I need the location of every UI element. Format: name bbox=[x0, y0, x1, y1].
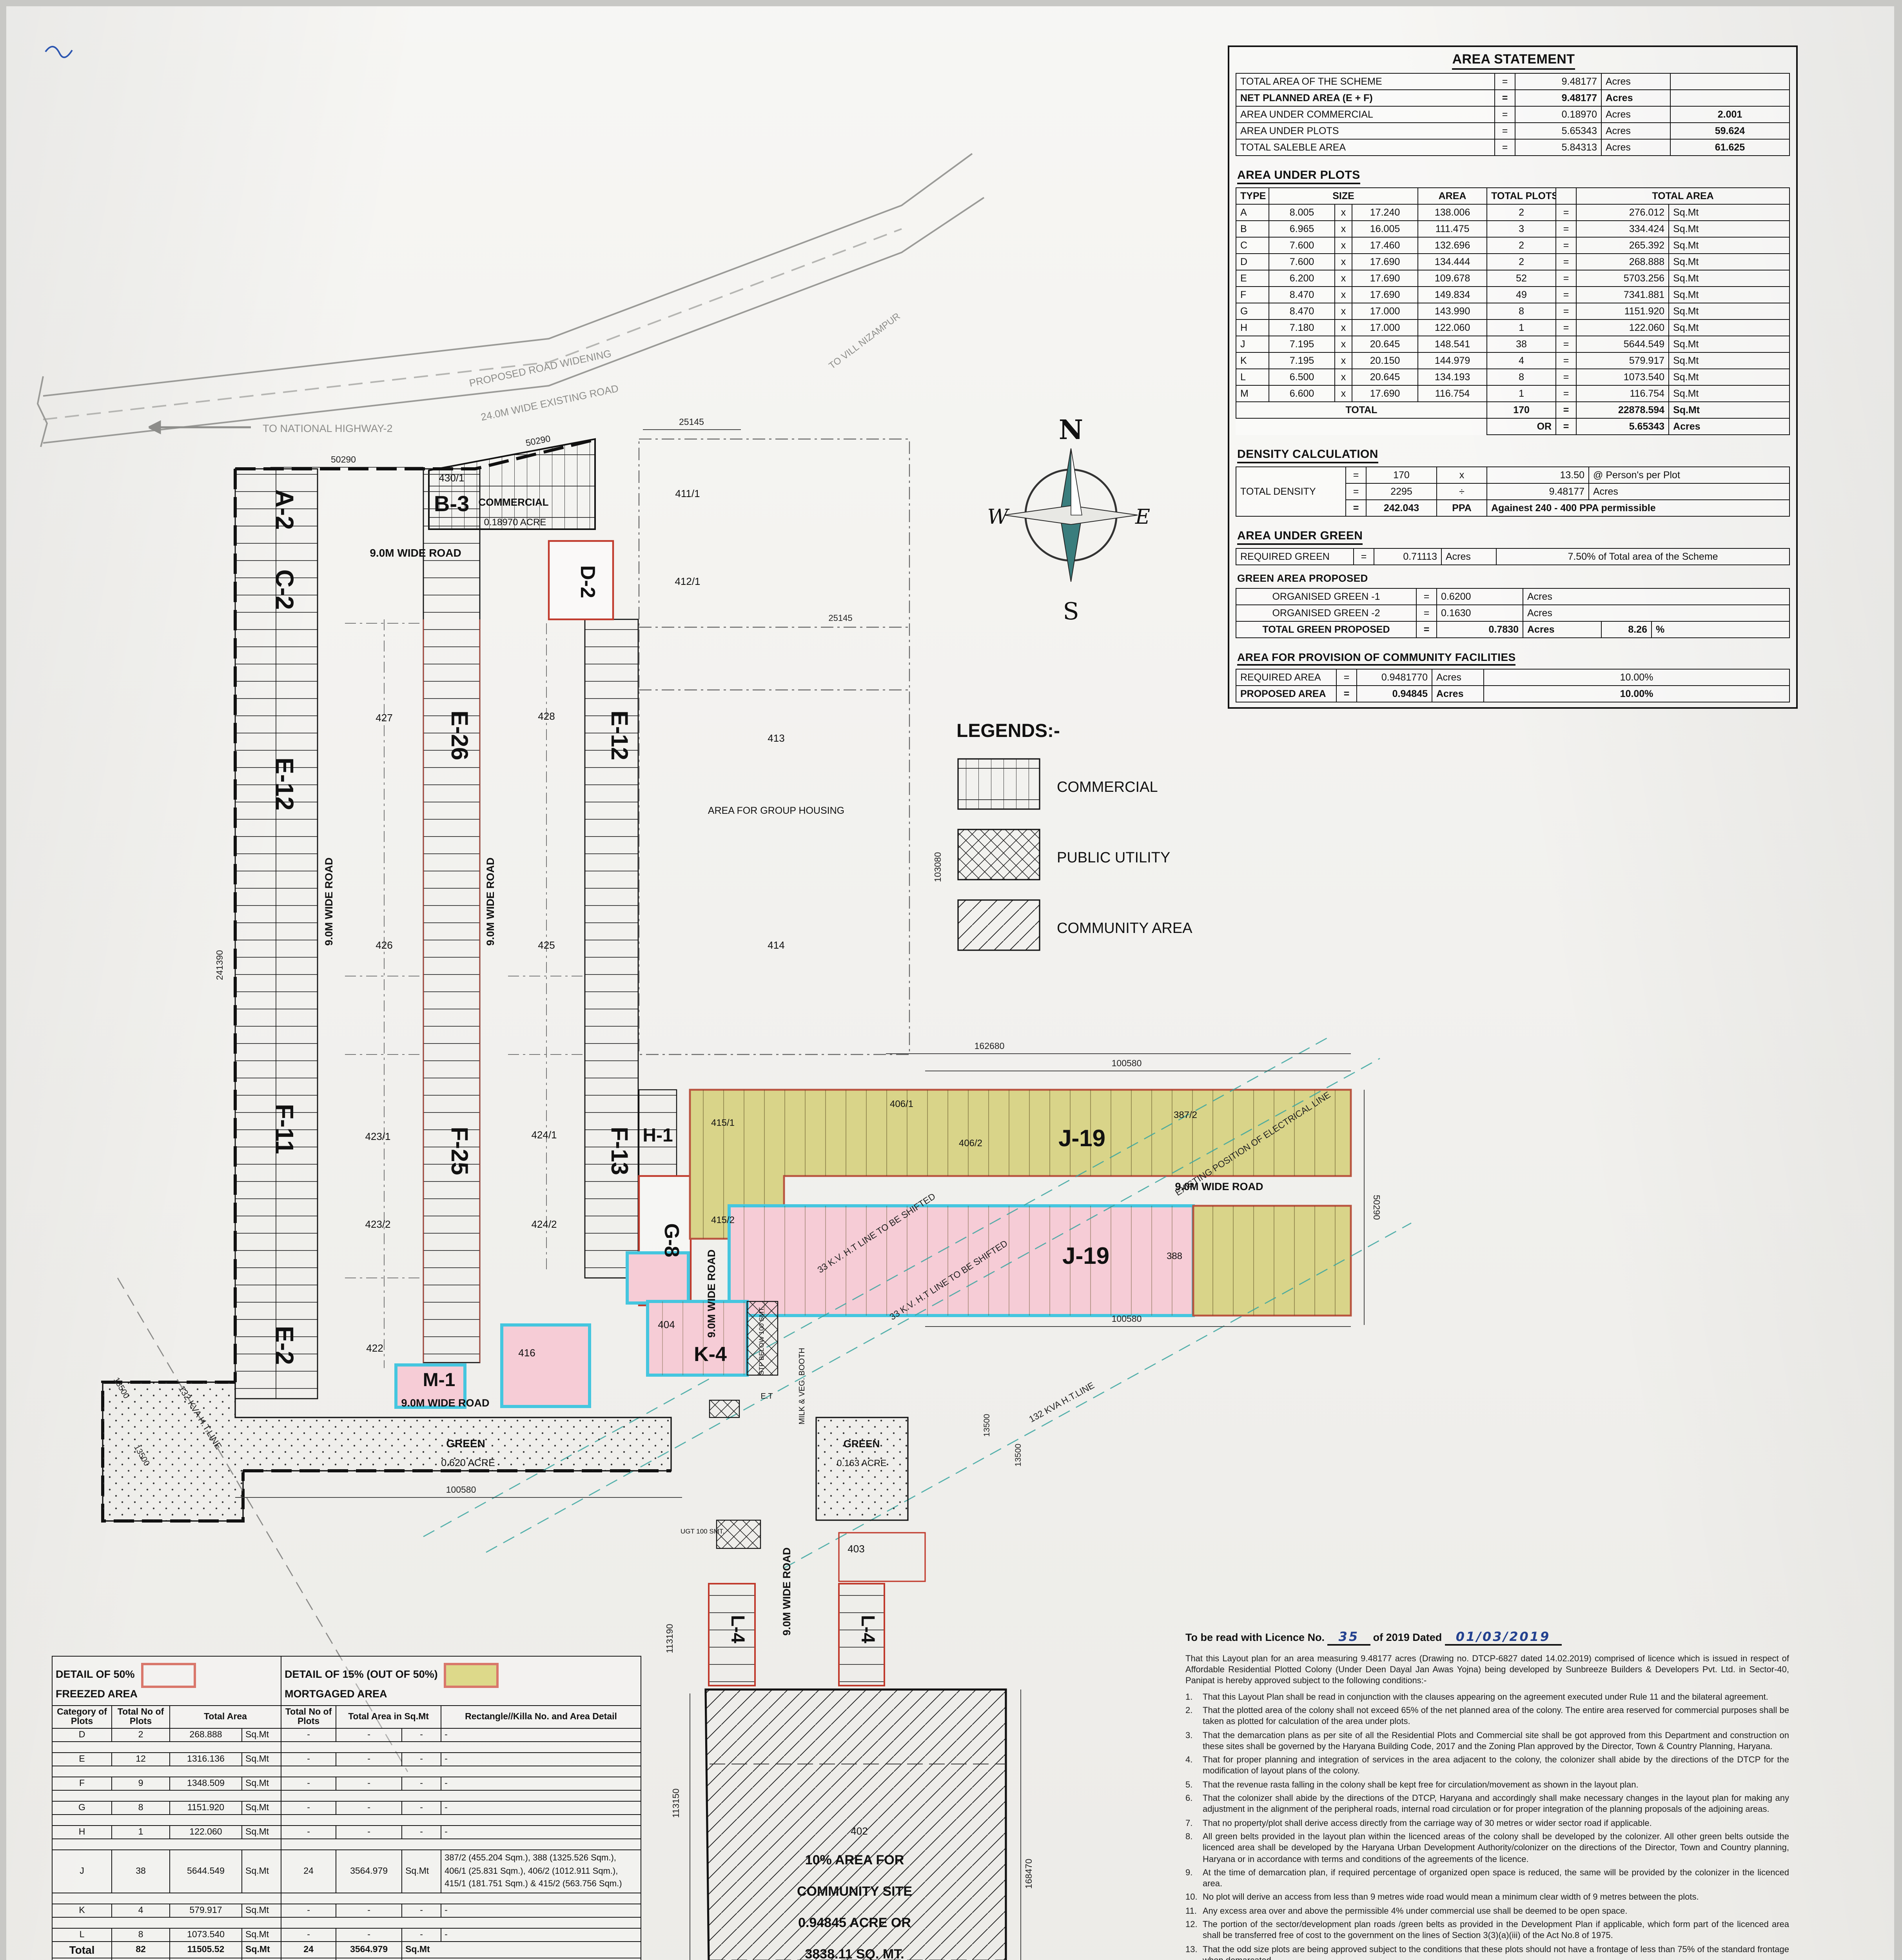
dim-100580-mid: 100580 bbox=[235, 1485, 682, 1497]
spacer-row bbox=[52, 1893, 641, 1904]
green-proposed-title: GREEN AREA PROPOSED bbox=[1237, 572, 1368, 585]
table-row: ORGANISED GREEN -1=0.6200Acres bbox=[1236, 588, 1789, 605]
svg-text:GREEN: GREEN bbox=[446, 1437, 485, 1450]
table-row-j: J385644.549Sq.Mt243564.979Sq.Mt387/2 (45… bbox=[52, 1850, 641, 1893]
table-row: C7.600x17.460132.6962=265.392Sq.Mt bbox=[1236, 237, 1789, 254]
table-row: E6.200x17.690109.67852=5703.256Sq.Mt bbox=[1236, 270, 1789, 287]
kh-402: 402 bbox=[851, 1825, 868, 1837]
svg-text:C-2: C-2 bbox=[270, 569, 299, 610]
area-statement-title: AREA STATEMENT bbox=[1452, 52, 1575, 70]
svg-text:B-3: B-3 bbox=[434, 491, 469, 516]
condition-item: 12.The portion of the sector/development… bbox=[1185, 1919, 1789, 1942]
freezed-mortgaged-table: DETAIL OF 50%FREEZED AREA DETAIL OF 15% … bbox=[52, 1656, 641, 1960]
table-row: M6.600x17.690116.7541=116.754Sq.Mt bbox=[1236, 385, 1789, 402]
dim-50290-right: 50290 bbox=[1364, 1090, 1382, 1325]
svg-text:E-12: E-12 bbox=[606, 711, 633, 760]
mortgaged-swatch bbox=[444, 1662, 499, 1688]
table-total-row: Total8211505.52Sq.Mt243564.979Sq.Mt bbox=[52, 1941, 641, 1958]
table-row: NET PLANNED AREA (E + F)=9.48177Acres bbox=[1236, 90, 1789, 106]
svg-text:F-11: F-11 bbox=[270, 1104, 299, 1154]
block-j19b-label: J-19 bbox=[1062, 1243, 1109, 1269]
dim-103080: 103080 bbox=[933, 852, 943, 882]
svg-text:E-12: E-12 bbox=[270, 757, 299, 810]
table-or-row: OR=5.65343Acres bbox=[1236, 418, 1789, 435]
svg-text:424/2: 424/2 bbox=[531, 1218, 557, 1230]
svg-text:H-1: H-1 bbox=[642, 1125, 673, 1146]
condition-item: 8.All green belts provided in the layout… bbox=[1185, 1831, 1789, 1865]
to-nizampur-label: TO VILL NIZAMPUR bbox=[827, 311, 902, 371]
kh-414: 414 bbox=[768, 939, 784, 951]
svg-text:9.0M WIDE ROAD: 9.0M WIDE ROAD bbox=[706, 1249, 717, 1338]
g8-freezed-bit bbox=[627, 1253, 688, 1303]
svg-text:UGT 100 SMT.: UGT 100 SMT. bbox=[681, 1528, 724, 1535]
table-row: TOTAL SALEBLE AREA=5.84313Acres61.625 bbox=[1236, 139, 1789, 156]
group-housing-label: AREA FOR GROUP HOUSING bbox=[708, 805, 844, 816]
svg-text:10% AREA FOR: 10% AREA FOR bbox=[805, 1853, 904, 1867]
table-row: D7.600x17.690134.4442=268.888Sq.Mt bbox=[1236, 254, 1789, 270]
svg-text:9.0M WIDE ROAD: 9.0M WIDE ROAD bbox=[323, 857, 335, 946]
svg-text:LEGENDS:-: LEGENDS:- bbox=[956, 720, 1060, 741]
svg-text:E: E bbox=[1135, 505, 1150, 529]
svg-text:E-2: E-2 bbox=[270, 1326, 299, 1365]
spacer-row bbox=[52, 1917, 641, 1928]
kh-406-2: 406/2 bbox=[959, 1138, 982, 1149]
svg-text:L-4: L-4 bbox=[727, 1615, 748, 1643]
area-statement-table: TOTAL AREA OF THE SCHEME=9.48177Acres NE… bbox=[1236, 73, 1790, 156]
svg-text:113150: 113150 bbox=[671, 1788, 681, 1818]
svg-text:9.0M WIDE ROAD: 9.0M WIDE ROAD bbox=[370, 547, 461, 559]
kh-413: 413 bbox=[768, 732, 784, 744]
svg-text:COMMERCIAL: COMMERCIAL bbox=[1057, 779, 1158, 795]
svg-text:416: 416 bbox=[518, 1347, 535, 1359]
svg-text:162680: 162680 bbox=[975, 1041, 1005, 1051]
svg-text:STP BELOW 100 SMT.: STP BELOW 100 SMT. bbox=[758, 1306, 765, 1375]
svg-text:PUBLIC UTILITY: PUBLIC UTILITY bbox=[1057, 849, 1170, 866]
existing-road-label: 24.0M WIDE EXISTING ROAD bbox=[480, 382, 620, 423]
sheet-scaler: PROPOSED ROAD WIDENING 24.0M WIDE EXISTI… bbox=[0, 0, 1902, 1960]
table-row: AREA UNDER COMMERCIAL=0.18970Acres2.001 bbox=[1236, 106, 1789, 123]
svg-text:F-25: F-25 bbox=[446, 1127, 473, 1175]
licence-number-handwritten: 35 bbox=[1328, 1629, 1370, 1646]
commercial-area-label: 0.18970 ACRE bbox=[484, 517, 546, 528]
svg-text:S: S bbox=[1063, 598, 1079, 625]
svg-text:428: 428 bbox=[538, 710, 555, 722]
table-row: PROPOSED AREA=0.94845Acres10.00% bbox=[1236, 686, 1789, 702]
road9-j19: 9.0M WIDE ROAD bbox=[1175, 1181, 1263, 1192]
community-fac-title: AREA FOR PROVISION OF COMMUNITY FACILITI… bbox=[1237, 651, 1516, 666]
table-total-row: TOTAL170=22878.594Sq.Mt bbox=[1236, 402, 1789, 418]
svg-text:L-4: L-4 bbox=[857, 1615, 878, 1643]
table-row: K7.195x20.150144.9794=579.917Sq.Mt bbox=[1236, 352, 1789, 369]
condition-item: 1.That this Layout Plan shall be read in… bbox=[1185, 1691, 1789, 1703]
existing-road-band bbox=[38, 154, 984, 447]
kh-415-1: 415/1 bbox=[711, 1118, 735, 1128]
table-row: K4579.917Sq.Mt---- bbox=[52, 1904, 641, 1917]
condition-item: 3.That the demarcation plans as per site… bbox=[1185, 1730, 1789, 1752]
spacer-row bbox=[52, 1766, 641, 1777]
svg-text:9.0M WIDE ROAD: 9.0M WIDE ROAD bbox=[401, 1397, 489, 1409]
table-row: F8.470x17.690149.83449=7341.881Sq.Mt bbox=[1236, 287, 1789, 303]
svg-text:423/2: 423/2 bbox=[365, 1218, 390, 1230]
group-housing-area bbox=[639, 439, 909, 1054]
svg-text:0.163 ACRE: 0.163 ACRE bbox=[837, 1458, 887, 1468]
dim-113150: 113150 bbox=[671, 1693, 690, 1960]
svg-text:403: 403 bbox=[848, 1543, 864, 1555]
svg-text:25145: 25145 bbox=[679, 417, 704, 427]
kh-387-2: 387/2 bbox=[1174, 1110, 1197, 1120]
svg-text:E.T: E.T bbox=[760, 1392, 773, 1401]
svg-text:100580: 100580 bbox=[1112, 1058, 1142, 1068]
density-title: DENSITY CALCULATION bbox=[1237, 448, 1378, 463]
table-or-row: OR2.84AcresOR0.88Acres bbox=[52, 1958, 641, 1960]
dim-50290-topleft: 50290 bbox=[270, 454, 423, 467]
green-title: AREA UNDER GREEN bbox=[1237, 529, 1363, 545]
green-2 bbox=[816, 1417, 908, 1520]
kh-406-1: 406/1 bbox=[890, 1099, 913, 1109]
plot-column-2 bbox=[423, 469, 480, 1363]
block-j19-label: J-19 bbox=[1058, 1125, 1105, 1151]
svg-text:GREEN: GREEN bbox=[844, 1438, 880, 1450]
svg-text:9.0M WIDE ROAD: 9.0M WIDE ROAD bbox=[781, 1547, 793, 1635]
condition-item: 9.At the time of demarcation plan, if re… bbox=[1185, 1867, 1789, 1890]
svg-text:168470: 168470 bbox=[1024, 1859, 1034, 1889]
svg-text:9.0M WIDE ROAD: 9.0M WIDE ROAD bbox=[485, 857, 496, 946]
table-row: L81073.540Sq.Mt---- bbox=[52, 1928, 641, 1941]
table-row: L6.500x20.645134.1938=1073.540Sq.Mt bbox=[1236, 369, 1789, 385]
table-row: F91348.509Sq.Mt---- bbox=[52, 1777, 641, 1790]
kh-412-1: 412/1 bbox=[675, 575, 700, 587]
table-header-row: TYPESIZEAREATOTAL PLOTSTOTAL AREA bbox=[1236, 188, 1789, 204]
condition-item: 11.Any excess area over and above the pe… bbox=[1185, 1906, 1789, 1917]
svg-text:W: W bbox=[987, 505, 1010, 529]
dim-25145-top: 25145 bbox=[643, 417, 741, 430]
table-row: TOTAL GREEN PROPOSED=0.7830Acres8.26% bbox=[1236, 621, 1789, 638]
dim-162680: 162680 bbox=[886, 1041, 1351, 1054]
svg-text:430/1: 430/1 bbox=[439, 472, 464, 484]
svg-text:COMMUNITY AREA: COMMUNITY AREA bbox=[1057, 920, 1192, 936]
dim-13500-d: 13500 bbox=[1014, 1444, 1023, 1466]
kh-411-1: 411/1 bbox=[675, 488, 700, 499]
dim-241390: 241390 bbox=[214, 950, 225, 980]
green-required-table: REQUIRED GREEN=0.71113Acres7.50% of Tota… bbox=[1236, 548, 1790, 565]
svg-text:G-8: G-8 bbox=[660, 1223, 683, 1258]
condition-item: 7.That no property/plot shall derive acc… bbox=[1185, 1818, 1789, 1829]
svg-text:50290: 50290 bbox=[331, 454, 356, 465]
svg-text:E-26: E-26 bbox=[446, 711, 473, 760]
table-row: B6.965x16.005111.4753=334.424Sq.Mt bbox=[1236, 221, 1789, 237]
commercial-label: COMMERCIAL bbox=[478, 496, 548, 508]
svg-text:A-2: A-2 bbox=[270, 489, 299, 530]
svg-text:50290: 50290 bbox=[1372, 1195, 1382, 1220]
table-row: E121316.136Sq.Mt---- bbox=[52, 1753, 641, 1766]
area-under-plots-title: AREA UNDER PLOTS bbox=[1237, 169, 1360, 184]
svg-text:426: 426 bbox=[376, 939, 392, 951]
svg-text:427: 427 bbox=[376, 712, 392, 724]
compass-rose: N W E S bbox=[987, 414, 1150, 625]
green-proposed-table: ORGANISED GREEN -1=0.6200Acres ORGANISED… bbox=[1236, 588, 1790, 638]
svg-text:MILK & VEG. BOOTH: MILK & VEG. BOOTH bbox=[798, 1348, 806, 1425]
right-tables-panel: AREA STATEMENT TOTAL AREA OF THE SCHEME=… bbox=[1228, 45, 1798, 709]
density-table: TOTAL DENSITY=170x13.50@ Person's per Pl… bbox=[1236, 466, 1790, 517]
table-row: G8.470x17.000143.9908=1151.920Sq.Mt bbox=[1236, 303, 1789, 319]
spacer-row bbox=[52, 1815, 641, 1826]
table-row: H1122.060Sq.Mt---- bbox=[52, 1826, 641, 1839]
table-row: G81151.920Sq.Mt---- bbox=[52, 1801, 641, 1815]
table-header-row: Category of PlotsTotal No of PlotsTotal … bbox=[52, 1706, 641, 1728]
svg-text:424/1: 424/1 bbox=[531, 1129, 557, 1141]
corner-scribble bbox=[45, 47, 72, 57]
et-box bbox=[710, 1400, 739, 1417]
freezed-swatch bbox=[141, 1662, 196, 1688]
svg-text:D-2: D-2 bbox=[576, 565, 599, 598]
spacer-row bbox=[52, 1839, 641, 1850]
table-row: J7.195x20.645148.54138=5644.549Sq.Mt bbox=[1236, 336, 1789, 352]
p416-freezed bbox=[502, 1325, 590, 1406]
licence-conditions: To be read with Licence No. 35 of 2019 D… bbox=[1185, 1629, 1789, 1960]
dim-13500-c: 13500 bbox=[982, 1414, 991, 1437]
legends: LEGENDS:- COMMERCIAL PUBLIC UTILITY COMM… bbox=[956, 720, 1192, 950]
svg-text:K-4: K-4 bbox=[694, 1343, 727, 1366]
kh-415-2: 415/2 bbox=[711, 1215, 735, 1225]
to-highway-arrow bbox=[149, 422, 251, 433]
svg-text:0.620 ACRE: 0.620 ACRE bbox=[441, 1457, 495, 1468]
svg-text:100580: 100580 bbox=[446, 1485, 476, 1495]
svg-text:422: 422 bbox=[366, 1342, 383, 1354]
table-row: H7.180x17.000122.0601=122.060Sq.Mt bbox=[1236, 319, 1789, 336]
svg-text:423/1: 423/1 bbox=[365, 1131, 390, 1142]
table-row: TOTAL DENSITY=170x13.50@ Person's per Pl… bbox=[1236, 467, 1789, 483]
dim-25145-gh: 25145 bbox=[828, 613, 852, 623]
area-statement-box: AREA STATEMENT TOTAL AREA OF THE SCHEME=… bbox=[1228, 45, 1798, 709]
spacer-row bbox=[52, 1742, 641, 1753]
svg-text:3838.11 SQ. MT.: 3838.11 SQ. MT. bbox=[805, 1947, 904, 1960]
dim-168470: 168470 bbox=[1021, 1690, 1034, 1960]
svg-text:404: 404 bbox=[658, 1319, 675, 1330]
dim-113190: 113190 bbox=[664, 1624, 675, 1653]
condition-item: 5.That the revenue rasta falling in the … bbox=[1185, 1780, 1789, 1791]
table-header-band: DETAIL OF 50%FREEZED AREA DETAIL OF 15% … bbox=[52, 1656, 641, 1706]
dim-50290-diag: 50290 bbox=[525, 433, 552, 448]
svg-text:M-1: M-1 bbox=[423, 1370, 456, 1390]
licence-intro: That this Layout plan for an area measur… bbox=[1185, 1653, 1789, 1687]
table-row: REQUIRED AREA=0.9481770Acres10.00% bbox=[1236, 669, 1789, 686]
licence-header: To be read with Licence No. 35 of 2019 D… bbox=[1185, 1629, 1789, 1646]
condition-item: 2.That the plotted area of the colony sh… bbox=[1185, 1705, 1789, 1728]
table-row: TOTAL AREA OF THE SCHEME=9.48177Acres bbox=[1236, 73, 1789, 90]
svg-text:425: 425 bbox=[538, 939, 555, 951]
table-row: D2268.888Sq.Mt---- bbox=[52, 1728, 641, 1742]
p403 bbox=[839, 1533, 925, 1581]
kh-388: 388 bbox=[1167, 1251, 1182, 1261]
community-fac-table: REQUIRED AREA=0.9481770Acres10.00% PROPO… bbox=[1236, 669, 1790, 702]
svg-text:100580: 100580 bbox=[1112, 1314, 1142, 1324]
area-under-plots-table: TYPESIZEAREATOTAL PLOTSTOTAL AREA A8.005… bbox=[1236, 187, 1790, 435]
condition-item: 10.No plot will derive an access from le… bbox=[1185, 1892, 1789, 1904]
svg-text:F-13: F-13 bbox=[606, 1127, 633, 1175]
field1-dashdot bbox=[345, 619, 423, 1368]
condition-item: 6.That the colonizer shall abide by the … bbox=[1185, 1793, 1789, 1815]
spacer-row bbox=[52, 1790, 641, 1801]
condition-item: 13.That the odd size plots are being app… bbox=[1185, 1944, 1789, 1960]
table-row: AREA UNDER PLOTS=5.65343Acres59.624 bbox=[1236, 123, 1789, 139]
svg-text:N: N bbox=[1059, 414, 1083, 446]
condition-item: 4.That for proper planning and integrati… bbox=[1185, 1755, 1789, 1777]
licence-date-handwritten: 01/03/2019 bbox=[1445, 1629, 1562, 1646]
to-highway-label: TO NATIONAL HIGHWAY-2 bbox=[263, 423, 393, 434]
table-row: A8.005x17.240138.0062=276.012Sq.Mt bbox=[1236, 204, 1789, 221]
table-row: REQUIRED GREEN=0.71113Acres7.50% of Tota… bbox=[1236, 548, 1789, 565]
svg-text:0.94845 ACRE OR: 0.94845 ACRE OR bbox=[798, 1915, 911, 1930]
svg-text:COMMUNITY SITE: COMMUNITY SITE bbox=[797, 1884, 912, 1899]
table-row: ORGANISED GREEN -2=0.1630Acres bbox=[1236, 605, 1789, 621]
